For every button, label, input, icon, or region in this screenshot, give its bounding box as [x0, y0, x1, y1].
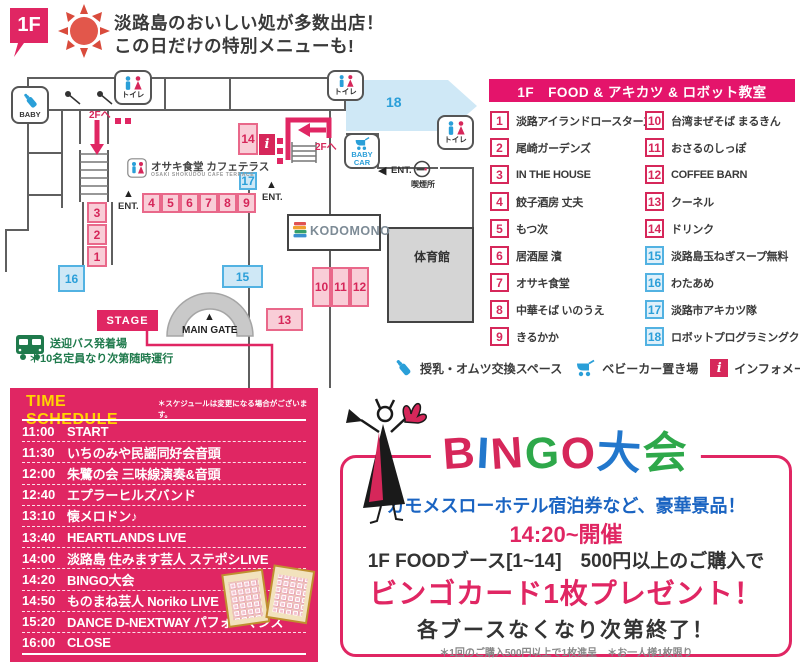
bingo-title-char: N	[489, 429, 526, 480]
schedule-row: 11:00START	[22, 421, 306, 442]
legend-item-label: 居酒屋 濱	[516, 248, 562, 264]
kodomono-logo-icon	[293, 221, 307, 239]
bingo-condition-line: 1F FOODブース[1~14] 500円以上のご購入で	[343, 546, 789, 573]
map-booth-7: 7	[199, 193, 218, 213]
bingo-title-char: B	[441, 429, 478, 480]
schedule-event: BINGO大会	[67, 570, 134, 589]
map-booth-9: 9	[237, 193, 256, 213]
schedule-time: 12:40	[22, 487, 67, 502]
legend-item-label: わたあめ	[671, 275, 714, 291]
entrance-label: ENT.	[118, 201, 139, 212]
legend-item-number: 15	[645, 246, 664, 265]
map-booth-3: 3	[87, 202, 107, 223]
legend-item-number: 9	[490, 327, 509, 346]
page-title-line1: 淡路島のおいしい処が多数出店！	[114, 10, 384, 35]
baby-bottle-icon	[20, 91, 40, 111]
legend-item: 16わたあめ	[645, 269, 800, 296]
schedule-time: 14:00	[22, 551, 67, 566]
legend-item-number: 17	[645, 300, 664, 319]
main-gate-label: MAIN GATE	[182, 325, 237, 336]
map-booth-2: 2	[87, 224, 107, 245]
info-icon: i	[710, 359, 728, 377]
schedule-event: エプラーヒルズバンド	[67, 485, 196, 504]
legend-item-number: 11	[645, 138, 664, 157]
map-area-18-label: 18	[386, 94, 402, 110]
facilities-key: 授乳・オムツ交換スペース ベビーカー置き場 i インフォメーション	[392, 355, 800, 381]
schedule-event: HEARTLANDS LIVE	[67, 530, 186, 545]
gym-shape	[388, 228, 473, 322]
map-booth-6: 6	[180, 193, 199, 213]
event-flyer: { "colors": { "pink_main": "#e02663", "c…	[0, 0, 800, 670]
door-marks	[65, 91, 112, 104]
osaki-cafe-sublabel: OSAKI SHOKUDOU CAFE TERRACE	[151, 172, 254, 178]
legend-item: 10台湾まぜそば まるきん	[645, 107, 800, 134]
legend-item-number: 3	[490, 165, 509, 184]
map-booth-5: 5	[161, 193, 180, 213]
schedule-event: START	[67, 424, 108, 439]
to-2f-label: 2Fへ	[89, 106, 111, 121]
baby-car-area: BABY CAR	[344, 133, 380, 169]
stairs-middle	[292, 142, 316, 163]
info-icon: i	[259, 134, 275, 155]
legend-item-label: 淡路島玉ねぎスープ無料	[671, 248, 788, 264]
entrance-arrow-icon: ▲	[266, 179, 277, 191]
baby-room-label: BABY	[19, 111, 40, 119]
legend-item: 17淡路市アキカツ隊	[645, 296, 800, 323]
map-booth-10: 10	[312, 267, 331, 307]
legend-item-label: ドリンク	[671, 221, 714, 237]
toilet-2: トイレ	[327, 70, 364, 101]
legend-item-label: 中華そば いのうえ	[516, 302, 604, 318]
schedule-row: 13:40HEARTLANDS LIVE	[22, 527, 306, 548]
legend-item: 7オサキ食堂	[490, 269, 653, 296]
bingo-cards-image	[218, 560, 318, 632]
legend-item-number: 5	[490, 219, 509, 238]
shuttle-bus-note: ＊10名定員なり次第随時運行	[29, 350, 173, 366]
legend-item-number: 6	[490, 246, 509, 265]
bingo-present-line: ビンゴカード1枚プレゼント！	[343, 572, 789, 612]
legend-column-right: 10台湾まぜそば まるきん 11おさるのしっぽ 12COFFEE BARN 13…	[645, 107, 800, 350]
legend-item: 8中華そば いのうえ	[490, 296, 653, 323]
devil-mascot-illustration	[333, 392, 433, 527]
legend-item-label: 淡路アイランドロースターズ	[516, 113, 653, 129]
baby-bottle-icon	[392, 357, 414, 379]
schedule-time: 14:20	[22, 572, 67, 587]
legend-item-number: 18	[645, 327, 664, 346]
legend-item-label: 餃子酒房 丈夫	[516, 194, 583, 210]
schedule-row: 16:00CLOSE	[22, 633, 306, 655]
schedule-event: CLOSE	[67, 635, 111, 650]
baby-room: BABY	[11, 86, 49, 124]
legend-item-label: オサキ食堂	[516, 275, 570, 291]
toilet-label: トイレ	[334, 88, 357, 96]
toilet-label: トイレ	[444, 136, 467, 144]
legend-item-label: クーネル	[671, 194, 714, 210]
legend-item-number: 10	[645, 111, 664, 130]
osaki-cafe-logo-icon	[127, 158, 147, 178]
stage-label: STAGE	[97, 310, 158, 331]
legend-item: 9きるかか	[490, 323, 653, 350]
map-booth-11: 11	[331, 267, 350, 307]
legend-item-label: 台湾まぜそば まるきん	[671, 113, 780, 129]
schedule-time: 13:10	[22, 508, 67, 523]
legend-item-number: 4	[490, 192, 509, 211]
stairs-left	[80, 154, 108, 194]
toilet-icon	[123, 76, 143, 91]
toilet-label: トイレ	[122, 91, 145, 99]
shuttle-bus-label: 送迎バス発着場	[50, 335, 127, 351]
legend-item-label: おさるのしっぽ	[671, 140, 746, 156]
toilet-1: トイレ	[114, 70, 152, 105]
schedule-event: ものまね芸人 Noriko LIVE	[67, 591, 219, 610]
schedule-time: 13:40	[22, 530, 67, 545]
legend-item-number: 12	[645, 165, 664, 184]
entrance-arrow-icon: ▲	[123, 188, 134, 200]
map-booth-8: 8	[218, 193, 237, 213]
bingo-note-line: ＊1回のご購入500円以上で1枚進呈 ＊お一人様1枚限り	[343, 644, 789, 659]
bingo-title: BINGO大会	[431, 430, 701, 478]
legend-item: 11おさるのしっぽ	[645, 134, 800, 161]
sun-icon	[58, 4, 110, 58]
bingo-title-char: G	[524, 429, 562, 479]
smoking-icon	[413, 160, 431, 178]
legend-item-number: 8	[490, 300, 509, 319]
legend-item: 3IN THE HOUSE	[490, 161, 653, 188]
legend-item-label: ロボットプログラミングクラブ	[671, 329, 800, 345]
map-booth-16: 16	[58, 265, 85, 292]
legend-item: 12COFFEE BARN	[645, 161, 800, 188]
bingo-title-char: 会	[642, 429, 690, 479]
schedule-row: 11:30いちのみや民謡同好会音頭	[22, 442, 306, 463]
baby-car-label: BABY CAR	[348, 151, 376, 167]
bingo-title-char: O	[559, 429, 599, 480]
legend-item-number: 13	[645, 192, 664, 211]
legend-item-label: COFFEE BARN	[671, 169, 747, 181]
legend-item-label: きるかか	[516, 329, 559, 345]
schedule-event: 朱鷺の会 三味線演奏&音頭	[67, 464, 220, 483]
legend-column-left: 1淡路アイランドロースターズ 2尾崎ガーデンズ 3IN THE HOUSE 4餃…	[490, 107, 653, 350]
schedule-time: 12:00	[22, 466, 67, 481]
legend-item-label: もつ次	[516, 221, 548, 237]
toilet-icon	[446, 121, 466, 136]
map-booth-12: 12	[350, 267, 369, 307]
bingo-title-char: 大	[596, 429, 644, 480]
legend-item: 13クーネル	[645, 188, 800, 215]
schedule-row: 13:10懐メロドン♪	[22, 506, 306, 527]
smoking-area-label: 喫煙所	[411, 179, 435, 190]
toilet-3: トイレ	[437, 115, 474, 150]
legend-item-number: 16	[645, 273, 664, 292]
map-booth-1: 1	[87, 246, 107, 267]
schedule-row: 12:00朱鷺の会 三味線演奏&音頭	[22, 463, 306, 484]
legend-item-number: 7	[490, 273, 509, 292]
legend-item: 2尾崎ガーデンズ	[490, 134, 653, 161]
entrance-label: ENT.	[262, 192, 283, 203]
legend-item-number: 1	[490, 111, 509, 130]
legend-item: 1淡路アイランドロースターズ	[490, 107, 653, 134]
stroller-icon	[353, 136, 371, 151]
entrance-arrow-icon: ◀	[378, 164, 386, 177]
schedule-time: 11:00	[22, 424, 67, 439]
legend-item-number: 14	[645, 219, 664, 238]
floor-badge: 1F	[10, 9, 48, 42]
legend-item: 4餃子酒房 丈夫	[490, 188, 653, 215]
schedule-time: 14:50	[22, 593, 67, 608]
legend-item: 15淡路島玉ねぎスープ無料	[645, 242, 800, 269]
legend-header: 1F FOOD & アキカツ & ロボット教室	[489, 79, 795, 102]
main-gate-arrow-icon: ▲	[204, 311, 215, 323]
schedule-row: 12:40エプラーヒルズバンド	[22, 485, 306, 506]
legend-item-label: 淡路市アキカツ隊	[671, 302, 757, 318]
legend-item: 5もつ次	[490, 215, 653, 242]
map-booth-15: 15	[222, 265, 263, 288]
schedule-event: 懐メロドン♪	[67, 506, 137, 525]
schedule-note: ＊スケジュールは変更になる場合がございます。	[158, 398, 308, 420]
entrance-label: ENT.	[391, 165, 412, 176]
schedule-time: 16:00	[22, 635, 67, 650]
legend-item: 18ロボットプログラミングクラブ	[645, 323, 800, 350]
page-title-line2: この日だけの特別メニューも!	[114, 33, 354, 58]
gym-label: 体育館	[414, 248, 450, 265]
map-booth-14: 14	[238, 123, 258, 155]
to-2f-label: 2Fへ	[315, 138, 337, 153]
schedule-event: いちのみや民謡同好会音頭	[67, 443, 221, 462]
facility-label: 授乳・オムツ交換スペース	[420, 360, 562, 377]
facility-label: インフォメーション	[734, 360, 800, 377]
facility-label: ベビーカー置き場	[602, 360, 698, 377]
legend-item: 14ドリンク	[645, 215, 800, 242]
legend-item-label: 尾崎ガーデンズ	[516, 140, 591, 156]
legend-item-number: 2	[490, 138, 509, 157]
bingo-end-line: 各ブースなくなり次第終了！	[343, 614, 789, 644]
map-booth-13: 13	[266, 308, 303, 331]
kodomono-label: KODOMONO	[310, 224, 390, 238]
schedule-time: 11:30	[22, 445, 67, 460]
map-booth-4: 4	[142, 193, 161, 213]
legend-item: 6居酒屋 濱	[490, 242, 653, 269]
legend-item-label: IN THE HOUSE	[516, 169, 591, 181]
schedule-time: 15:20	[22, 614, 67, 629]
stroller-icon	[574, 358, 596, 378]
